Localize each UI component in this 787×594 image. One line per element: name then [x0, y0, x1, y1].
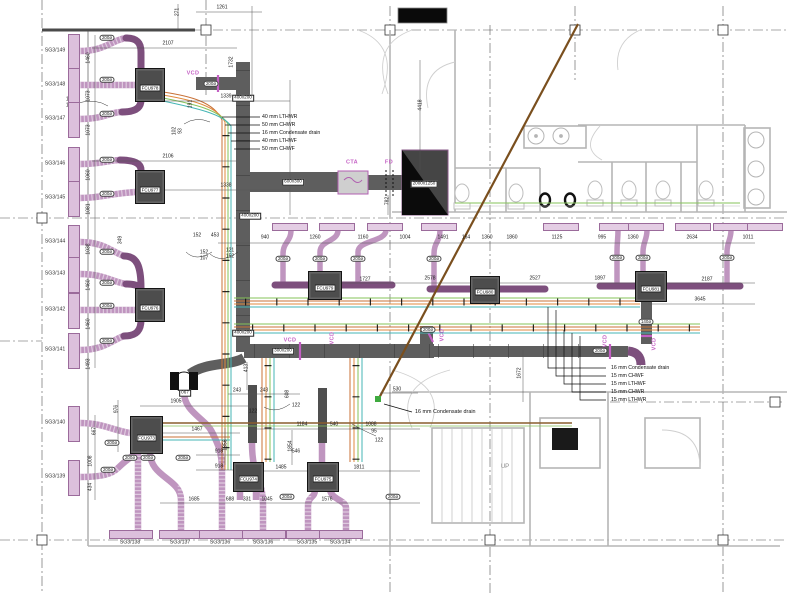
pipe-legend-label: 50 mm CHWR [262, 122, 295, 128]
grille-label: SG3/135 [297, 540, 317, 545]
dimension-label: 1576 [321, 498, 332, 503]
dimension-label: 434 [89, 483, 94, 491]
round-duct-label: 200ø [592, 348, 607, 354]
fcu-unit: FCU974 [233, 462, 264, 492]
fcu-label: FCU980 [475, 289, 496, 296]
fd-label: FD [385, 160, 393, 166]
dimension-label: 1672 [518, 367, 523, 378]
round-duct-label: 200ø [99, 35, 114, 41]
round-duct-label: 200ø [100, 467, 115, 473]
round-duct-label: 200ø [99, 303, 114, 309]
ceiling-diffuser [747, 223, 783, 231]
dimension-label: 164 [462, 236, 470, 241]
round-duct-label: 200ø [426, 256, 441, 262]
pipe-legend-label: 15 mm CHWF [611, 373, 644, 379]
dimension-label: 1856 [224, 439, 229, 450]
grille-label: SG3/134 [330, 540, 350, 545]
supply-grille [109, 530, 153, 539]
grille-label: SG3/142 [45, 307, 65, 312]
round-duct-label: 200ø [99, 111, 114, 117]
labels-layer: 2711261210717321339210613384418782146010… [0, 0, 787, 594]
dimension-label: 243 [260, 389, 268, 394]
round-duct-label: 200ø [635, 255, 650, 261]
round-duct-label: 200ø [312, 256, 327, 262]
dimension-label: 1008 [89, 455, 94, 466]
dimension-label: 1491 [437, 236, 448, 241]
fcu-unit: FCU980 [470, 276, 500, 304]
fcu-label: FCU979 [315, 284, 336, 291]
supply-grille [68, 102, 80, 138]
round-duct-label: 200ø [104, 440, 119, 446]
grille-label: SG3/137 [170, 540, 190, 545]
dimension-label: 546 [292, 450, 300, 455]
dimension-label: 1045 [261, 498, 272, 503]
dimension-label: 1088 [365, 423, 376, 428]
round-duct-label: 200ø [99, 191, 114, 197]
round-duct-label: 200ø [385, 494, 400, 500]
supply-grille [68, 333, 80, 369]
dimension-label: 152 [193, 234, 201, 239]
dimension-label: 1081 [87, 203, 92, 214]
pipe-legend-label: 15 mm LTHWR [611, 397, 646, 403]
supply-grille [68, 34, 80, 70]
dimension-label: 1260 [309, 236, 320, 241]
dimension-label: 1460 [87, 318, 92, 329]
fcu-label: FCU975 [313, 476, 334, 483]
cta-label: CTA [346, 160, 358, 166]
vcd-label: VCD [330, 332, 336, 345]
dimension-label: 331 [243, 498, 251, 503]
dimension-label: 2187 [701, 278, 712, 283]
dimension-label: 1004 [399, 236, 410, 241]
fcu-label: FCU981 [641, 285, 662, 292]
grille-label: SG3/136 [210, 540, 230, 545]
dimension-label: 1125 [552, 236, 563, 241]
grille-label: SG3/138 [120, 540, 140, 545]
fcu-label: FCU976 [140, 304, 161, 311]
round-duct-label: 200ø [203, 81, 218, 87]
round-duct-label: 200ø [99, 280, 114, 286]
grille-label: SG3/149 [45, 48, 65, 53]
dimension-label: 453 [211, 234, 219, 239]
dimension-label: 995 [598, 236, 606, 241]
dimension-label: 530 [393, 388, 401, 393]
dimension-label: 4418 [419, 99, 424, 110]
dimension-label: 122 [249, 410, 257, 415]
dimension-label: 1038 [87, 243, 92, 254]
ceiling-diffuser [272, 223, 308, 231]
dimension-label: 1905 [170, 400, 181, 405]
ceiling-diffuser [421, 223, 457, 231]
round-duct-label: 200ø [420, 327, 435, 333]
supply-grille [68, 181, 80, 217]
round-duct-label: 140ø [638, 319, 653, 325]
supply-grille [159, 530, 203, 539]
duct-size-label: 600x300 [282, 179, 304, 186]
dimension-label: 1493 [87, 358, 92, 369]
ceiling-diffuser [713, 223, 749, 231]
dimension-label: 1811 [354, 466, 365, 471]
dimension-label: 1073 [87, 124, 92, 135]
fcu-unit: FCU977 [135, 170, 165, 204]
pipe-legend-label: 50 mm CHWF [262, 146, 295, 152]
supply-grille [68, 257, 80, 293]
hvac-floor-plan: 2711261210717321339210613384418782146010… [0, 0, 787, 594]
pipe-legend-label: 40 mm LTHWF [262, 138, 297, 144]
round-duct-label: 200ø [99, 249, 114, 255]
supply-grille [68, 147, 80, 183]
fcu-unit: FCU979 [308, 271, 342, 300]
dimension-label: 608 [286, 390, 291, 398]
round-duct-label: 200ø [122, 455, 137, 461]
dimension-label: 191 [189, 100, 194, 108]
pipe-legend-label: 15 mm LTHWF [611, 381, 646, 387]
dimension-label: 1485 [275, 466, 286, 471]
dimension-label: 243 [233, 389, 241, 394]
pipe-legend-label: 16 mm Condensate drain [262, 130, 320, 136]
round-duct-label: 200ø [99, 157, 114, 163]
round-duct-label: 200ø [99, 77, 114, 83]
dimension-label: 2107 [162, 42, 173, 47]
vcd-label: VCD [603, 335, 609, 348]
dimension-label: 2578 [424, 277, 435, 282]
dimension-label: 976 [115, 405, 120, 413]
dimension-label: 688 [226, 498, 234, 503]
supply-grille [199, 530, 243, 539]
fcu-unit: FCU978 [135, 68, 165, 102]
duct-size-label: 400x200 [232, 330, 254, 337]
vcd-label: VCD [284, 338, 297, 344]
dimension-label: 95 [371, 430, 377, 435]
stair-up-label: UP [501, 464, 509, 470]
grille-label: SG3/145 [45, 195, 65, 200]
grille-label: SG3/143 [45, 271, 65, 276]
dimension-label: 940 [261, 236, 269, 241]
dimension-label: 918 [215, 450, 223, 455]
dimension-label: 1011 [743, 236, 754, 241]
dimension-label: 271 [176, 8, 181, 16]
grille-label: SG3/148 [45, 82, 65, 87]
pipe-legend-label: 40 mm LTHWR [262, 114, 297, 120]
fcu-label: FCU973 [136, 434, 157, 441]
fcu-unit: FCU976 [135, 288, 165, 322]
grille-label: SG3/141 [45, 347, 65, 352]
dimension-label: 1160 [358, 236, 369, 241]
vcd-label: VCD [652, 338, 658, 351]
grille-label: SG3/146 [45, 161, 65, 166]
dimension-label: 1073 [87, 90, 92, 101]
vcd-label: VCD [187, 71, 200, 77]
round-duct-label: 200ø [609, 255, 624, 261]
round-duct-label: 200ø [279, 494, 294, 500]
supply-grille [68, 406, 80, 442]
pipe-legend-label: 15 mm CHWR [611, 389, 644, 395]
dimension-label: 2634 [686, 236, 697, 241]
round-duct-label: 200ø [140, 455, 155, 461]
dimension-label: 1339 [220, 95, 231, 100]
condensate-callout: 16 mm Condensate drain [415, 409, 476, 415]
grille-label: SG3/140 [45, 420, 65, 425]
grille-label: SG3/139 [45, 474, 65, 479]
ceiling-diffuser [675, 223, 711, 231]
dimension-label: 152 [226, 255, 234, 260]
grille-label: SG3/136 [253, 540, 273, 545]
round-duct-label: 200ø [99, 338, 114, 344]
fcu-label: FCU978 [140, 84, 161, 91]
dimension-label: 667 [93, 427, 98, 435]
dimension-label: 413 [245, 364, 250, 372]
dimension-label: 1460 [87, 279, 92, 290]
dimension-label: 3645 [694, 298, 705, 303]
dimension-label: 2527 [529, 277, 540, 282]
ceiling-diffuser [628, 223, 664, 231]
dimension-label: 1060 [87, 169, 92, 180]
dimension-label: 1897 [594, 277, 605, 282]
dimension-label: 782 [386, 197, 391, 205]
grille-label: SG3/144 [45, 239, 65, 244]
duct-size-label: 400x200 [232, 95, 254, 102]
grille-label: SG3/147 [45, 116, 65, 121]
fcu-label: FCU977 [140, 186, 161, 193]
dimension-label: 1467 [191, 428, 202, 433]
dimension-label: 1860 [506, 236, 517, 241]
supply-grille [68, 68, 80, 104]
dimension-label: 2106 [162, 155, 173, 160]
round-duct-label: 200ø [719, 255, 734, 261]
vcd-label: VCD [440, 329, 446, 342]
dimension-label: 1261 [216, 6, 227, 11]
dimension-label: 540 [330, 423, 338, 428]
fcu-unit: FCU973 [130, 416, 163, 454]
dimension-label: 1360 [481, 236, 492, 241]
supply-grille [68, 293, 80, 329]
dimension-label: 1685 [188, 498, 199, 503]
dimension-label: 1360 [627, 236, 638, 241]
round-duct-label: 200ø [175, 455, 190, 461]
dimension-label: 1732 [230, 56, 235, 67]
round-duct-label: 200ø [275, 256, 290, 262]
dimension-label: 1727 [359, 278, 370, 283]
fan-tag-label: 067 [179, 390, 191, 397]
pipe-legend-label: 16 mm Condensate drain [611, 365, 669, 371]
duct-size-label: 400x200 [239, 213, 261, 220]
supply-grille [68, 225, 80, 261]
dimension-label: 93 [179, 128, 184, 134]
supply-grille [242, 530, 286, 539]
ceiling-diffuser [367, 223, 403, 231]
fcu-unit: FCU975 [307, 462, 339, 492]
dimension-label: 107 [200, 257, 208, 262]
dimension-label: 349 [119, 236, 124, 244]
ceiling-diffuser [543, 223, 579, 231]
dimension-label: 122 [375, 439, 383, 444]
supply-grille [68, 460, 80, 496]
duct-size-label: 300x200 [272, 348, 294, 355]
dimension-label: 1460 [87, 52, 92, 63]
round-duct-label: 200ø [350, 256, 365, 262]
ceiling-diffuser [319, 223, 355, 231]
dimension-label: 1184 [297, 423, 308, 428]
supply-grille [319, 530, 363, 539]
fcu-label: FCU974 [238, 476, 259, 483]
fcu-unit: FCU981 [635, 271, 667, 302]
dimension-label: 1338 [220, 184, 231, 189]
dimension-label: 918 [215, 465, 223, 470]
dimension-label: 122 [292, 404, 300, 409]
duct-size-label: 2000x1250 [411, 181, 438, 188]
